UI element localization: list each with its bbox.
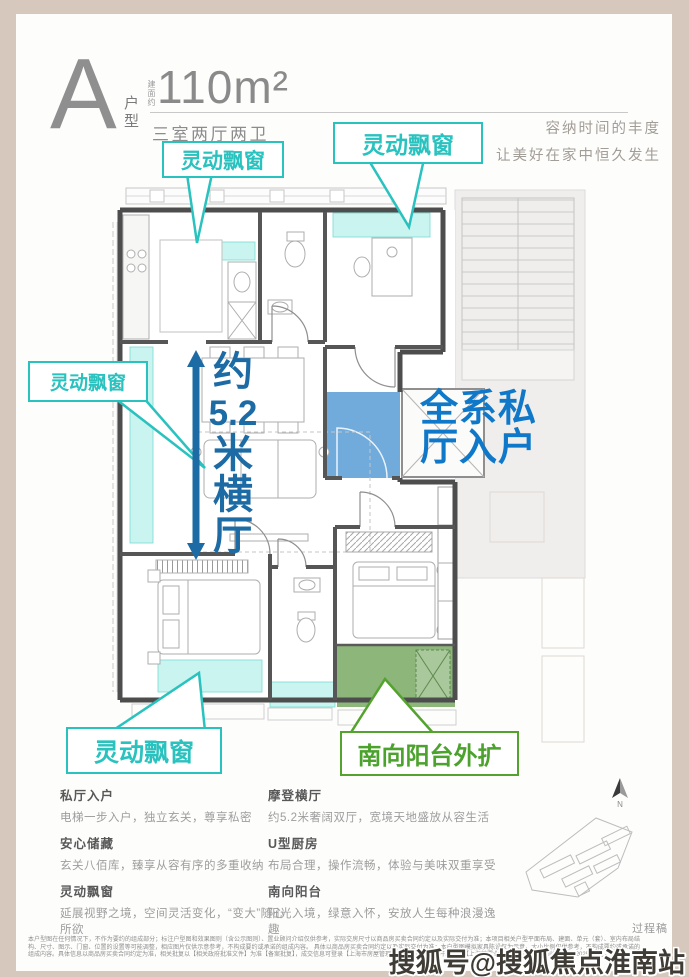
flyer-page: A 户型 建面约 110m² 三室两厅两卫 容纳时间的丰度 让美好在家中恒久发生 <box>0 0 689 977</box>
watermark: 搜狐号@搜狐焦点淮南站 <box>389 941 685 977</box>
callout-bay-window-top-left: 灵动飘窗 <box>162 141 284 178</box>
feature-storage: 安心储藏 玄关八佰库，臻享从容有序的多重收纳 <box>60 833 290 873</box>
feature-wide-hall: 摩登横厅 约5.2米奢阔双厅，宽境天地盛放从容生活 <box>268 785 498 825</box>
area-value: 110m² <box>157 60 289 114</box>
feature-bay-window: 灵动飘窗 延展视野之境，空间灵活变化，“变大”随心所欲 <box>60 881 290 937</box>
north-label: N <box>612 800 628 809</box>
feature-south-balcony: 南向阳台 阳光入境，绿意入怀，安放人生每种浪漫逸趣 <box>268 881 498 937</box>
unit-type-letter: A <box>50 44 117 144</box>
callout-balcony-extension: 南向阳台外扩 <box>340 731 519 776</box>
dimension-label: 约 5.2 米 横 厅 <box>206 352 260 557</box>
private-hall-label: 全系私厅入户 <box>420 390 542 468</box>
slogan-line1: 容纳时间的丰度 <box>496 116 661 143</box>
slogan-line2: 让美好在家中恒久发生 <box>496 143 661 170</box>
unit-type-label: 户型 <box>120 95 141 139</box>
callout-bay-window-top-right: 灵动飘窗 <box>333 122 483 164</box>
draft-label: 过程稿 <box>632 920 668 936</box>
feature-u-kitchen: U型厨房 布局合理，操作流畅，体验与美味双重享受 <box>268 833 498 873</box>
area-prefix: 建面约 <box>146 80 157 112</box>
site-plan-map <box>518 810 640 902</box>
callout-bay-window-left: 灵动飘窗 <box>28 361 148 402</box>
floor-plan <box>110 182 588 774</box>
callout-bay-window-bottom: 灵动飘窗 <box>66 727 222 774</box>
header-divider <box>150 112 628 113</box>
slogan: 容纳时间的丰度 让美好在家中恒久发生 <box>496 116 661 170</box>
feature-private-hall: 私厅入户 电梯一步入户，独立玄关，尊享私密 <box>60 785 290 825</box>
private-hall-highlight <box>325 392 400 478</box>
